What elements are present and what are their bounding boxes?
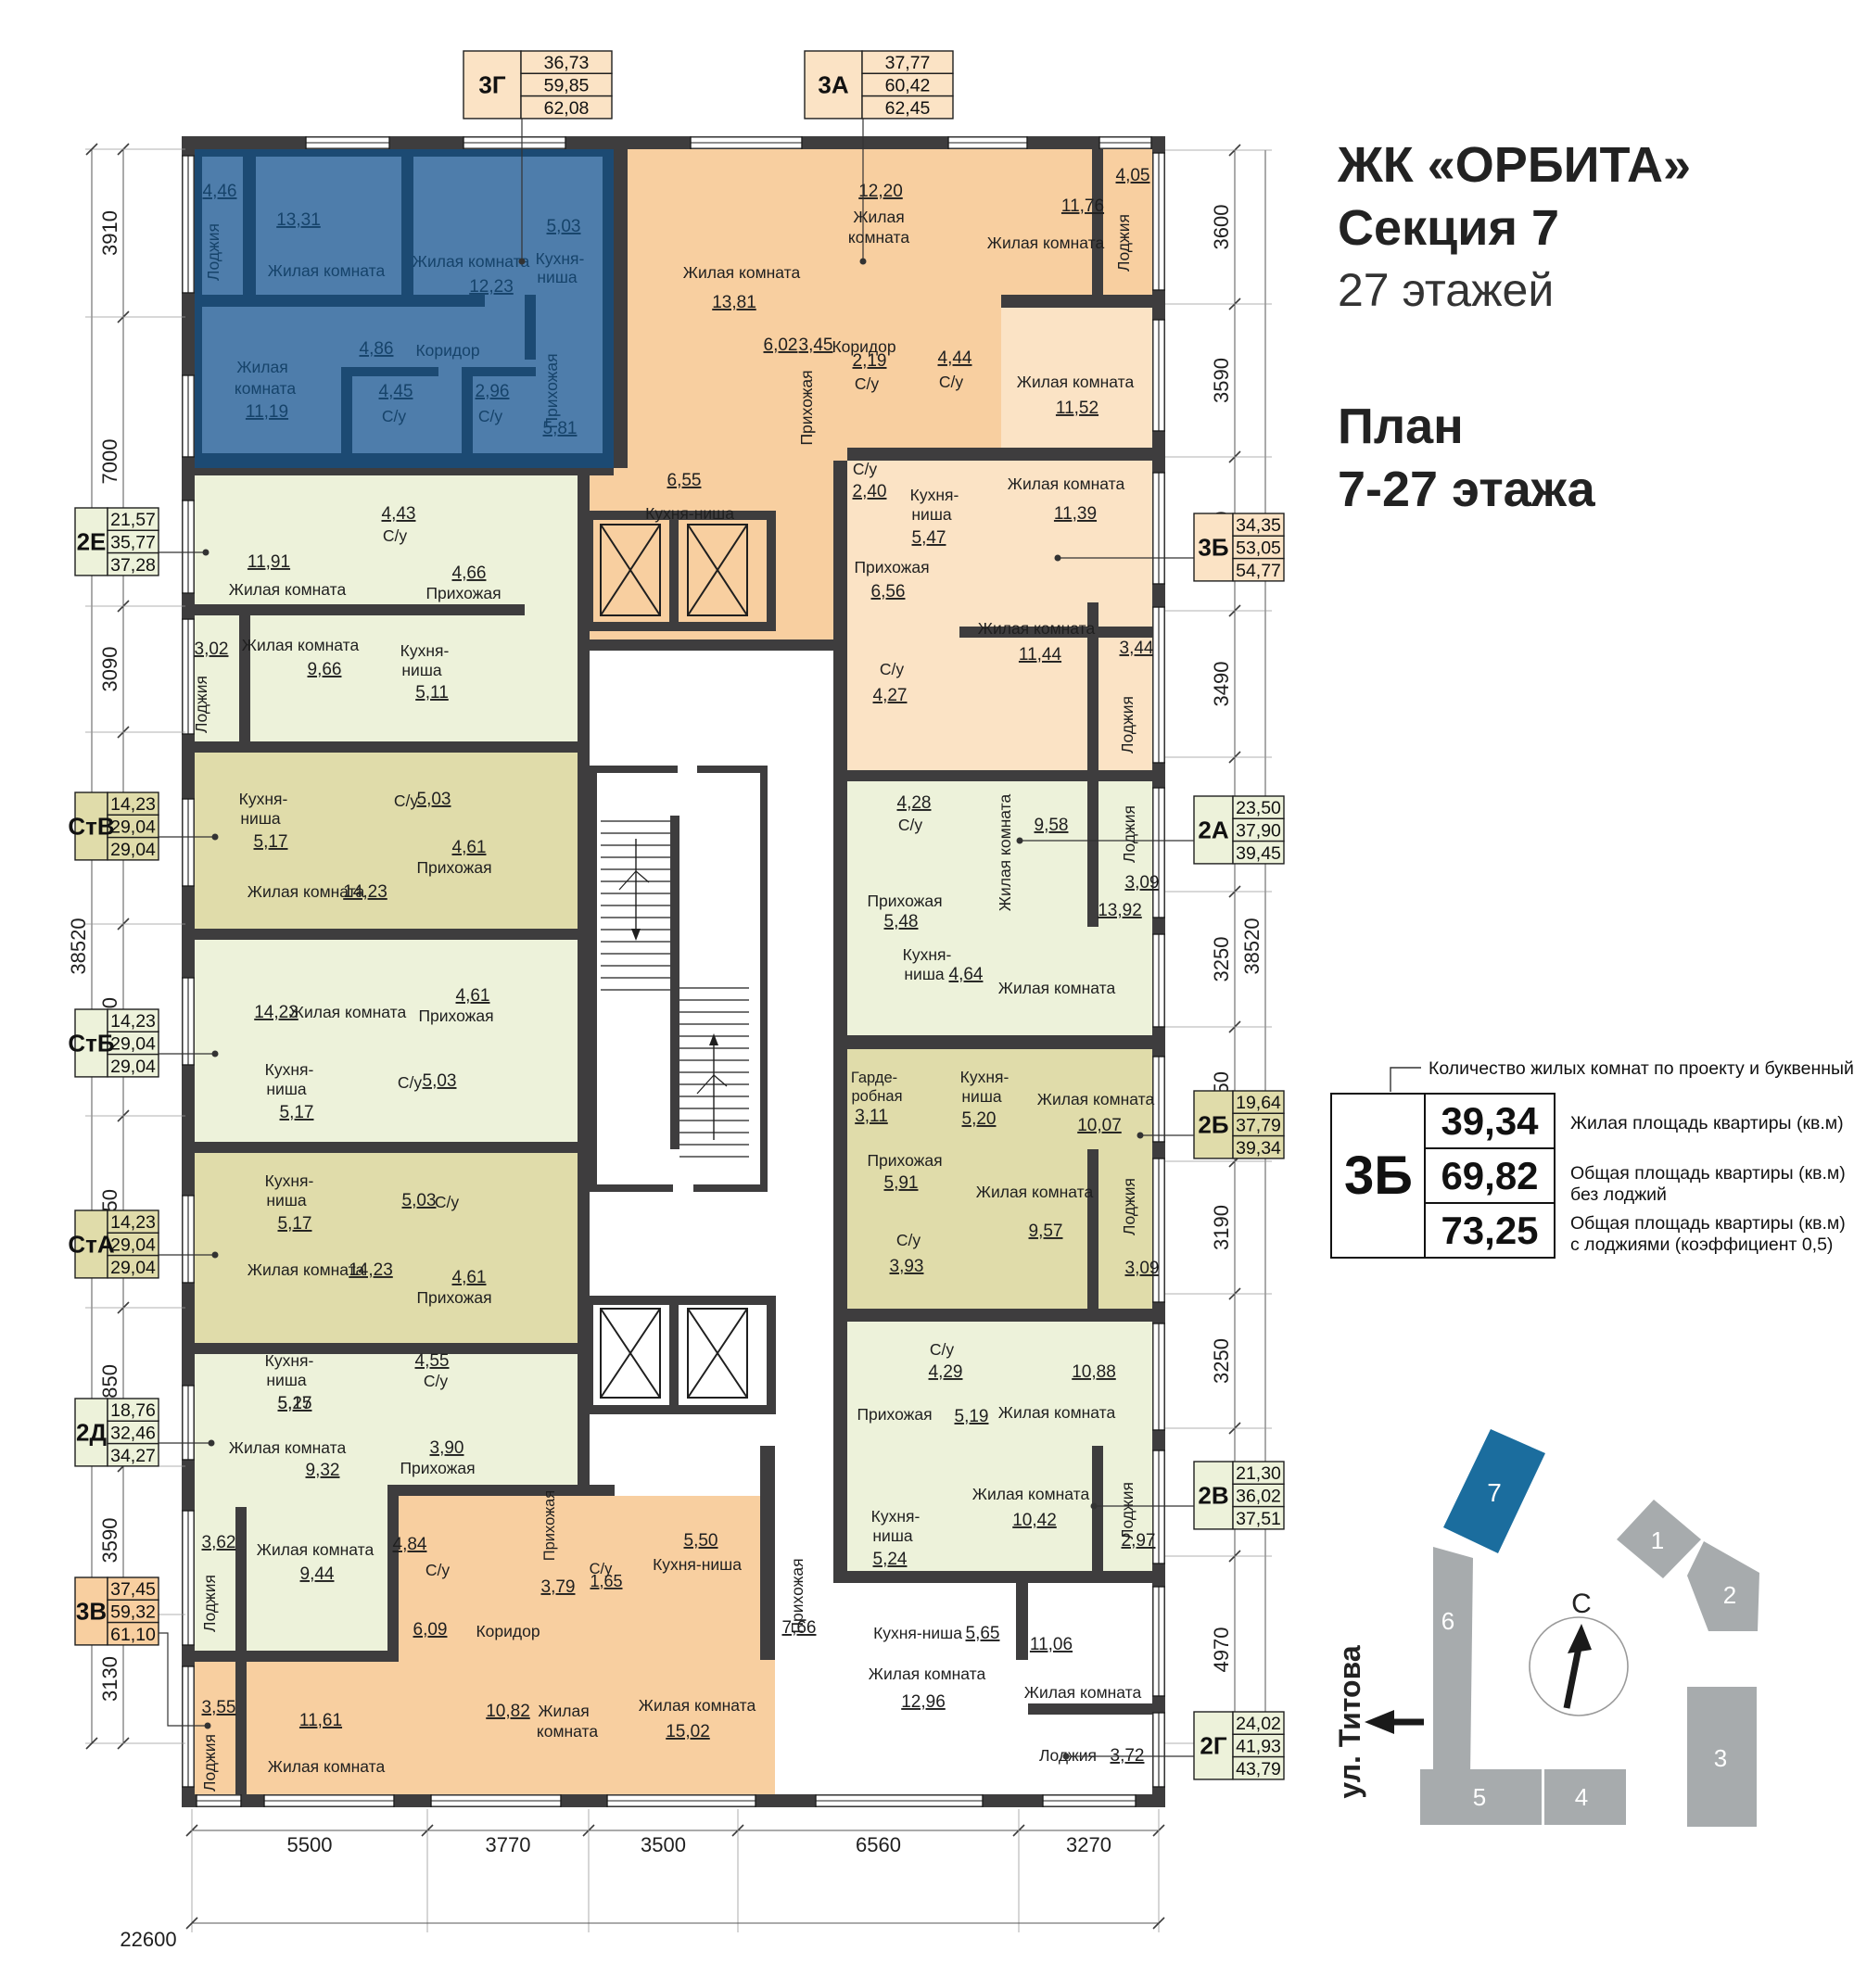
svg-text:ниша: ниша — [911, 505, 951, 524]
svg-text:7000: 7000 — [98, 439, 121, 485]
svg-text:Прихожая: Прихожая — [854, 558, 929, 576]
svg-text:3Б: 3Б — [1198, 533, 1228, 561]
svg-text:ниша: ниша — [537, 268, 577, 286]
svg-text:11,06: 11,06 — [1030, 1635, 1073, 1654]
svg-text:4,05: 4,05 — [1116, 166, 1150, 185]
svg-text:Жилая: Жилая — [853, 208, 904, 226]
svg-text:6: 6 — [1441, 1607, 1454, 1635]
svg-text:59,85: 59,85 — [544, 75, 590, 95]
svg-text:14,23: 14,23 — [343, 882, 387, 902]
svg-text:Жилая комната: Жилая комната — [289, 1003, 407, 1021]
svg-text:Кухня-: Кухня- — [265, 1171, 314, 1190]
svg-text:34,35: 34,35 — [1236, 515, 1281, 536]
svg-text:С/у: С/у — [383, 526, 408, 545]
svg-text:Прихожая: Прихожая — [867, 892, 942, 910]
svg-text:11,19: 11,19 — [246, 402, 288, 422]
svg-text:без лоджий: без лоджий — [1570, 1184, 1667, 1205]
svg-text:4,29: 4,29 — [929, 1362, 963, 1382]
svg-text:4,45: 4,45 — [379, 382, 413, 401]
svg-text:С/у: С/у — [853, 460, 878, 478]
svg-text:С/у: С/у — [394, 791, 419, 810]
svg-text:10,82: 10,82 — [486, 1702, 530, 1721]
svg-text:37,28: 37,28 — [110, 555, 156, 576]
svg-text:37,90: 37,90 — [1236, 820, 1281, 841]
svg-text:робная: робная — [851, 1088, 902, 1105]
svg-text:6560: 6560 — [856, 1833, 901, 1856]
svg-text:21,57: 21,57 — [110, 510, 156, 530]
svg-text:5,03: 5,03 — [417, 790, 451, 809]
svg-text:6,55: 6,55 — [667, 471, 702, 490]
svg-text:34,27: 34,27 — [110, 1446, 156, 1466]
svg-text:4: 4 — [1575, 1783, 1588, 1811]
svg-text:СтА: СтА — [68, 1230, 115, 1258]
svg-text:6,56: 6,56 — [871, 582, 906, 601]
svg-text:ниша: ниша — [240, 809, 280, 828]
svg-text:Прихожая: Прихожая — [416, 1288, 491, 1307]
svg-text:73,25: 73,25 — [1441, 1209, 1538, 1252]
svg-text:С/у: С/у — [425, 1561, 451, 1579]
svg-text:5,17: 5,17 — [278, 1214, 312, 1234]
svg-text:14,23: 14,23 — [349, 1260, 393, 1280]
svg-text:Прихожая: Прихожая — [867, 1151, 942, 1170]
svg-text:10,42: 10,42 — [1012, 1511, 1057, 1530]
svg-text:6,09: 6,09 — [413, 1620, 448, 1640]
svg-text:38520: 38520 — [1240, 918, 1264, 974]
svg-text:ниша: ниша — [904, 965, 944, 983]
svg-text:Жилая комната: Жилая комната — [257, 1540, 375, 1559]
svg-text:3250: 3250 — [1210, 937, 1233, 982]
svg-text:13,31: 13,31 — [276, 210, 321, 230]
svg-text:ниша: ниша — [266, 1371, 306, 1389]
svg-text:4,28: 4,28 — [897, 793, 932, 813]
svg-text:21,30: 21,30 — [1236, 1463, 1281, 1484]
svg-text:5,48: 5,48 — [884, 912, 919, 931]
svg-text:5: 5 — [1473, 1783, 1486, 1811]
svg-text:С/у: С/у — [398, 1073, 423, 1092]
svg-text:Жилая комната: Жилая комната — [229, 580, 347, 599]
svg-text:4,61: 4,61 — [452, 838, 487, 857]
svg-text:3,11: 3,11 — [855, 1107, 888, 1126]
svg-text:Кухня-: Кухня- — [871, 1507, 921, 1526]
svg-text:Гарде-: Гарде- — [851, 1070, 897, 1086]
svg-text:12,96: 12,96 — [901, 1692, 946, 1712]
svg-text:27 этажей: 27 этажей — [1338, 264, 1554, 316]
svg-text:С/у: С/у — [855, 374, 880, 393]
svg-text:Жилая комната: Жилая комната — [242, 636, 360, 654]
svg-text:комната: комната — [848, 228, 909, 247]
svg-text:4,46: 4,46 — [203, 182, 237, 201]
svg-text:Жилая комната: Жилая комната — [1017, 373, 1135, 391]
svg-text:62,45: 62,45 — [885, 98, 931, 119]
svg-text:Жилая комната: Жилая комната — [972, 1485, 1090, 1503]
svg-text:С/у: С/у — [880, 660, 905, 678]
svg-text:3,90: 3,90 — [430, 1438, 464, 1458]
svg-text:59,32: 59,32 — [110, 1602, 156, 1622]
svg-text:7,66: 7,66 — [782, 1618, 817, 1638]
svg-text:37,79: 37,79 — [1236, 1115, 1281, 1135]
svg-text:Лоджия: Лоджия — [1120, 1178, 1138, 1235]
svg-text:Общая площадь квартиры (кв.м): Общая площадь квартиры (кв.м) — [1570, 1163, 1846, 1184]
svg-text:14,23: 14,23 — [110, 1011, 156, 1032]
svg-text:3,79: 3,79 — [541, 1577, 576, 1597]
svg-text:Жилая комната: Жилая комната — [268, 1757, 386, 1776]
svg-text:3130: 3130 — [98, 1656, 121, 1702]
svg-text:с лоджиями (коэффициент 0,5): с лоджиями (коэффициент 0,5) — [1570, 1235, 1833, 1255]
svg-text:Жилая комната: Жилая комната — [413, 252, 530, 271]
svg-text:ниша: ниша — [872, 1526, 912, 1545]
svg-text:37,77: 37,77 — [885, 53, 931, 73]
svg-text:12,20: 12,20 — [858, 182, 903, 201]
svg-text:4,64: 4,64 — [949, 965, 984, 984]
svg-text:Прихожая: Прихожая — [416, 858, 491, 877]
svg-text:38520: 38520 — [67, 918, 90, 974]
svg-text:5,03: 5,03 — [402, 1191, 437, 1210]
svg-text:53,05: 53,05 — [1236, 538, 1281, 558]
svg-text:3Б: 3Б — [1344, 1146, 1413, 1206]
svg-text:Секция 7: Секция 7 — [1338, 200, 1559, 256]
svg-text:Кухня-ниша: Кухня-ниша — [645, 504, 734, 523]
svg-text:19,64: 19,64 — [1236, 1093, 1281, 1113]
svg-text:13,92: 13,92 — [1098, 901, 1142, 920]
svg-text:29,04: 29,04 — [110, 1258, 156, 1278]
svg-text:С/у: С/у — [896, 1231, 921, 1249]
svg-text:Лоджия: Лоджия — [1120, 805, 1138, 863]
svg-text:29,04: 29,04 — [110, 1235, 156, 1255]
svg-text:9,66: 9,66 — [308, 660, 342, 679]
svg-text:3,55: 3,55 — [202, 1698, 236, 1717]
svg-text:18,76: 18,76 — [110, 1400, 156, 1421]
svg-text:4970: 4970 — [1210, 1627, 1233, 1673]
svg-text:36,02: 36,02 — [1236, 1486, 1281, 1506]
svg-text:4,84: 4,84 — [393, 1535, 427, 1554]
svg-text:36,73: 36,73 — [544, 53, 590, 73]
svg-text:Прихожая: Прихожая — [857, 1405, 932, 1424]
svg-text:3: 3 — [1714, 1744, 1727, 1772]
svg-text:ниша: ниша — [266, 1191, 306, 1209]
svg-text:комната: комната — [235, 379, 296, 398]
svg-text:С: С — [1571, 1589, 1592, 1619]
svg-text:22600: 22600 — [120, 1928, 176, 1951]
svg-text:3,45: 3,45 — [799, 336, 833, 355]
svg-text:5,65: 5,65 — [966, 1624, 1000, 1643]
svg-text:2Г: 2Г — [1200, 1731, 1226, 1759]
svg-text:69,82: 69,82 — [1441, 1154, 1538, 1197]
svg-text:План: План — [1338, 399, 1464, 454]
svg-text:3В: 3В — [76, 1597, 107, 1625]
svg-text:4,61: 4,61 — [456, 986, 490, 1006]
svg-text:Прихожая: Прихожая — [400, 1459, 475, 1477]
svg-text:5,03: 5,03 — [423, 1071, 457, 1091]
svg-text:Коридор: Коридор — [415, 341, 479, 360]
svg-text:Жилая: Жилая — [538, 1702, 589, 1720]
svg-text:3090: 3090 — [98, 647, 121, 692]
svg-text:Жилая комната: Жилая комната — [683, 263, 801, 282]
svg-text:24,02: 24,02 — [1236, 1714, 1281, 1734]
svg-text:С/у: С/у — [898, 816, 923, 834]
svg-text:Лоджия: Лоджия — [200, 1734, 219, 1792]
svg-text:4,86: 4,86 — [360, 339, 394, 359]
svg-text:43,79: 43,79 — [1236, 1759, 1281, 1779]
svg-text:12,23: 12,23 — [469, 277, 514, 297]
svg-text:2,97: 2,97 — [1122, 1531, 1156, 1551]
svg-text:Прихожая: Прихожая — [541, 1490, 558, 1561]
svg-text:5,81: 5,81 — [543, 419, 578, 438]
svg-text:1: 1 — [1651, 1526, 1664, 1554]
svg-text:37,45: 37,45 — [110, 1579, 156, 1600]
svg-text:5500: 5500 — [287, 1833, 333, 1856]
svg-text:Жилая комната: Жилая комната — [998, 979, 1116, 997]
svg-text:7: 7 — [1487, 1478, 1502, 1507]
svg-text:3910: 3910 — [98, 210, 121, 256]
svg-text:39,34: 39,34 — [1441, 1099, 1539, 1143]
svg-text:Кухня-: Кухня- — [910, 486, 959, 504]
svg-text:54,77: 54,77 — [1236, 561, 1281, 581]
svg-text:Лоджия: Лоджия — [192, 676, 210, 733]
svg-text:35,77: 35,77 — [110, 532, 156, 552]
svg-text:Лоджия: Лоджия — [200, 1575, 219, 1632]
svg-text:3А: 3А — [818, 70, 848, 98]
svg-text:15,02: 15,02 — [666, 1722, 710, 1741]
svg-text:4,43: 4,43 — [382, 504, 416, 524]
svg-text:Лоджия: Лоджия — [204, 223, 222, 281]
svg-text:Жилая комната: Жилая комната — [987, 234, 1105, 252]
svg-text:Прихожая: Прихожая — [797, 370, 816, 445]
svg-text:13,81: 13,81 — [712, 293, 756, 312]
svg-text:5,24: 5,24 — [873, 1550, 908, 1569]
svg-text:2А: 2А — [1198, 816, 1228, 843]
svg-text:С/у: С/у — [382, 407, 407, 425]
svg-text:9,57: 9,57 — [1029, 1222, 1063, 1241]
svg-text:9,44: 9,44 — [300, 1564, 335, 1584]
svg-text:СтБ: СтБ — [68, 1029, 114, 1057]
svg-text:10,88: 10,88 — [1072, 1362, 1116, 1382]
svg-text:ниша: ниша — [961, 1087, 1001, 1106]
svg-text:5,20: 5,20 — [962, 1109, 997, 1129]
svg-text:3,09: 3,09 — [1125, 1259, 1160, 1278]
svg-text:Жилая комната: Жилая комната — [996, 794, 1014, 912]
svg-text:3190: 3190 — [1210, 1205, 1233, 1250]
svg-text:С/у: С/у — [930, 1340, 955, 1359]
svg-text:ниша: ниша — [401, 661, 441, 679]
svg-text:3500: 3500 — [641, 1833, 686, 1856]
svg-text:Кухня-: Кухня- — [239, 790, 288, 808]
svg-text:Прихожая: Прихожая — [425, 584, 501, 602]
svg-text:23,50: 23,50 — [1236, 798, 1281, 818]
svg-text:Прихожая: Прихожая — [418, 1007, 493, 1025]
svg-text:Жилая комната: Жилая комната — [1037, 1090, 1155, 1108]
svg-text:С/у: С/у — [939, 373, 964, 391]
svg-text:Жилая комната: Жилая комната — [869, 1665, 986, 1683]
svg-text:3250: 3250 — [1210, 1338, 1233, 1384]
svg-text:2,40: 2,40 — [853, 482, 887, 501]
svg-text:СтВ: СтВ — [68, 812, 114, 840]
svg-text:39,45: 39,45 — [1236, 843, 1281, 864]
svg-text:Жилая комната: Жилая комната — [248, 1260, 365, 1279]
svg-text:Жилая комната: Жилая комната — [229, 1438, 347, 1457]
svg-text:11,39: 11,39 — [1054, 504, 1097, 524]
svg-text:Жилая комната: Жилая комната — [639, 1696, 756, 1715]
svg-text:Жилая комната: Жилая комната — [998, 1403, 1116, 1422]
svg-text:11,44: 11,44 — [1019, 645, 1062, 665]
svg-text:5,25: 5,25 — [278, 1394, 312, 1413]
svg-text:3490: 3490 — [1210, 662, 1233, 707]
svg-text:3Г: 3Г — [478, 70, 505, 98]
svg-text:Лоджия: Лоджия — [1114, 214, 1133, 272]
svg-text:2В: 2В — [1198, 1481, 1228, 1509]
svg-text:29,04: 29,04 — [110, 1033, 156, 1054]
svg-text:Общая площадь квартиры (кв.м): Общая площадь квартиры (кв.м) — [1570, 1213, 1846, 1234]
svg-text:2Е: 2Е — [77, 527, 107, 555]
svg-text:5,19: 5,19 — [955, 1407, 989, 1426]
svg-text:41,93: 41,93 — [1236, 1736, 1281, 1756]
svg-text:11,52: 11,52 — [1056, 399, 1098, 418]
svg-text:5,17: 5,17 — [280, 1103, 314, 1122]
svg-text:ул. Титова: ул. Титова — [1333, 1645, 1366, 1799]
svg-text:Кухня-: Кухня- — [265, 1351, 314, 1370]
svg-text:Жилая комната: Жилая комната — [1024, 1683, 1142, 1702]
svg-text:5,17: 5,17 — [254, 832, 288, 852]
svg-text:Коридор: Коридор — [476, 1622, 540, 1640]
svg-text:3,62: 3,62 — [202, 1533, 236, 1552]
svg-text:9,32: 9,32 — [306, 1461, 340, 1480]
svg-text:Кухня-: Кухня- — [265, 1060, 314, 1079]
svg-text:Кухня-: Кухня- — [536, 249, 585, 268]
svg-text:14,23: 14,23 — [110, 794, 156, 815]
svg-text:2Д: 2Д — [76, 1418, 107, 1446]
svg-text:Жилая комната: Жилая комната — [978, 619, 1096, 638]
svg-text:3,02: 3,02 — [195, 639, 229, 659]
svg-text:Лоджия: Лоджия — [1118, 696, 1137, 753]
svg-text:С/у: С/у — [424, 1372, 449, 1390]
svg-text:Кухня-: Кухня- — [903, 945, 952, 964]
svg-text:3,44: 3,44 — [1120, 639, 1154, 658]
svg-text:3590: 3590 — [1210, 358, 1233, 403]
svg-text:С/у: С/у — [435, 1193, 460, 1211]
svg-text:11,91: 11,91 — [248, 552, 290, 572]
svg-text:60,42: 60,42 — [885, 75, 931, 95]
svg-text:11,61: 11,61 — [299, 1711, 342, 1730]
svg-text:2: 2 — [1723, 1581, 1736, 1609]
svg-text:1,65: 1,65 — [590, 1572, 622, 1590]
svg-text:3600: 3600 — [1210, 205, 1233, 250]
svg-text:37,51: 37,51 — [1236, 1509, 1281, 1529]
svg-text:3770: 3770 — [486, 1833, 531, 1856]
svg-text:Кухня-: Кухня- — [400, 641, 450, 660]
svg-text:Прихожая: Прихожая — [542, 353, 561, 428]
svg-text:3,93: 3,93 — [890, 1257, 924, 1276]
svg-text:10,07: 10,07 — [1077, 1116, 1122, 1135]
svg-text:Жилая комната: Жилая комната — [268, 261, 386, 280]
svg-text:5,91: 5,91 — [884, 1173, 919, 1193]
svg-text:5,50: 5,50 — [684, 1531, 718, 1551]
svg-text:Количество жилых комнат по про: Количество жилых комнат по проекту и бук… — [1429, 1058, 1854, 1079]
svg-text:5,11: 5,11 — [415, 683, 449, 703]
svg-text:2,19: 2,19 — [853, 351, 887, 371]
svg-text:32,46: 32,46 — [110, 1423, 156, 1443]
svg-text:4,44: 4,44 — [938, 348, 972, 368]
svg-text:3270: 3270 — [1066, 1833, 1111, 1856]
svg-text:4,55: 4,55 — [415, 1351, 450, 1371]
svg-text:62,08: 62,08 — [544, 98, 590, 119]
svg-text:ЖК «ОРБИТА»: ЖК «ОРБИТА» — [1337, 137, 1691, 193]
svg-text:Жилая: Жилая — [236, 358, 287, 376]
svg-text:9,58: 9,58 — [1035, 816, 1069, 835]
svg-text:61,10: 61,10 — [110, 1625, 156, 1645]
svg-text:29,04: 29,04 — [110, 1057, 156, 1077]
svg-text:Жилая комната: Жилая комната — [976, 1183, 1094, 1201]
svg-text:Кухня-ниша: Кухня-ниша — [873, 1624, 962, 1642]
svg-text:3,09: 3,09 — [1125, 873, 1160, 893]
svg-text:Жилая комната: Жилая комната — [1008, 475, 1125, 493]
svg-text:Кухня-ниша: Кухня-ниша — [653, 1555, 742, 1574]
svg-text:5,47: 5,47 — [912, 528, 946, 548]
svg-text:Кухня-: Кухня- — [960, 1068, 1010, 1086]
svg-text:4,66: 4,66 — [452, 563, 487, 583]
svg-text:11,76: 11,76 — [1061, 196, 1104, 216]
svg-text:7-27 этажа: 7-27 этажа — [1338, 462, 1596, 517]
svg-text:6,02: 6,02 — [764, 336, 798, 355]
svg-text:4,61: 4,61 — [452, 1268, 487, 1287]
svg-text:Жилая площадь квартиры (кв.м): Жилая площадь квартиры (кв.м) — [1570, 1113, 1844, 1133]
svg-text:4,27: 4,27 — [873, 686, 908, 705]
svg-text:14,23: 14,23 — [110, 1212, 156, 1233]
svg-text:комната: комната — [537, 1722, 598, 1741]
svg-text:С/у: С/у — [478, 407, 503, 425]
svg-text:3590: 3590 — [98, 1518, 121, 1564]
svg-text:5,03: 5,03 — [547, 217, 581, 236]
svg-text:39,34: 39,34 — [1236, 1138, 1281, 1159]
svg-text:2,96: 2,96 — [476, 382, 510, 401]
svg-text:29,04: 29,04 — [110, 817, 156, 837]
svg-text:ниша: ниша — [266, 1080, 306, 1098]
svg-text:2Б: 2Б — [1198, 1110, 1228, 1138]
svg-text:29,04: 29,04 — [110, 840, 156, 860]
